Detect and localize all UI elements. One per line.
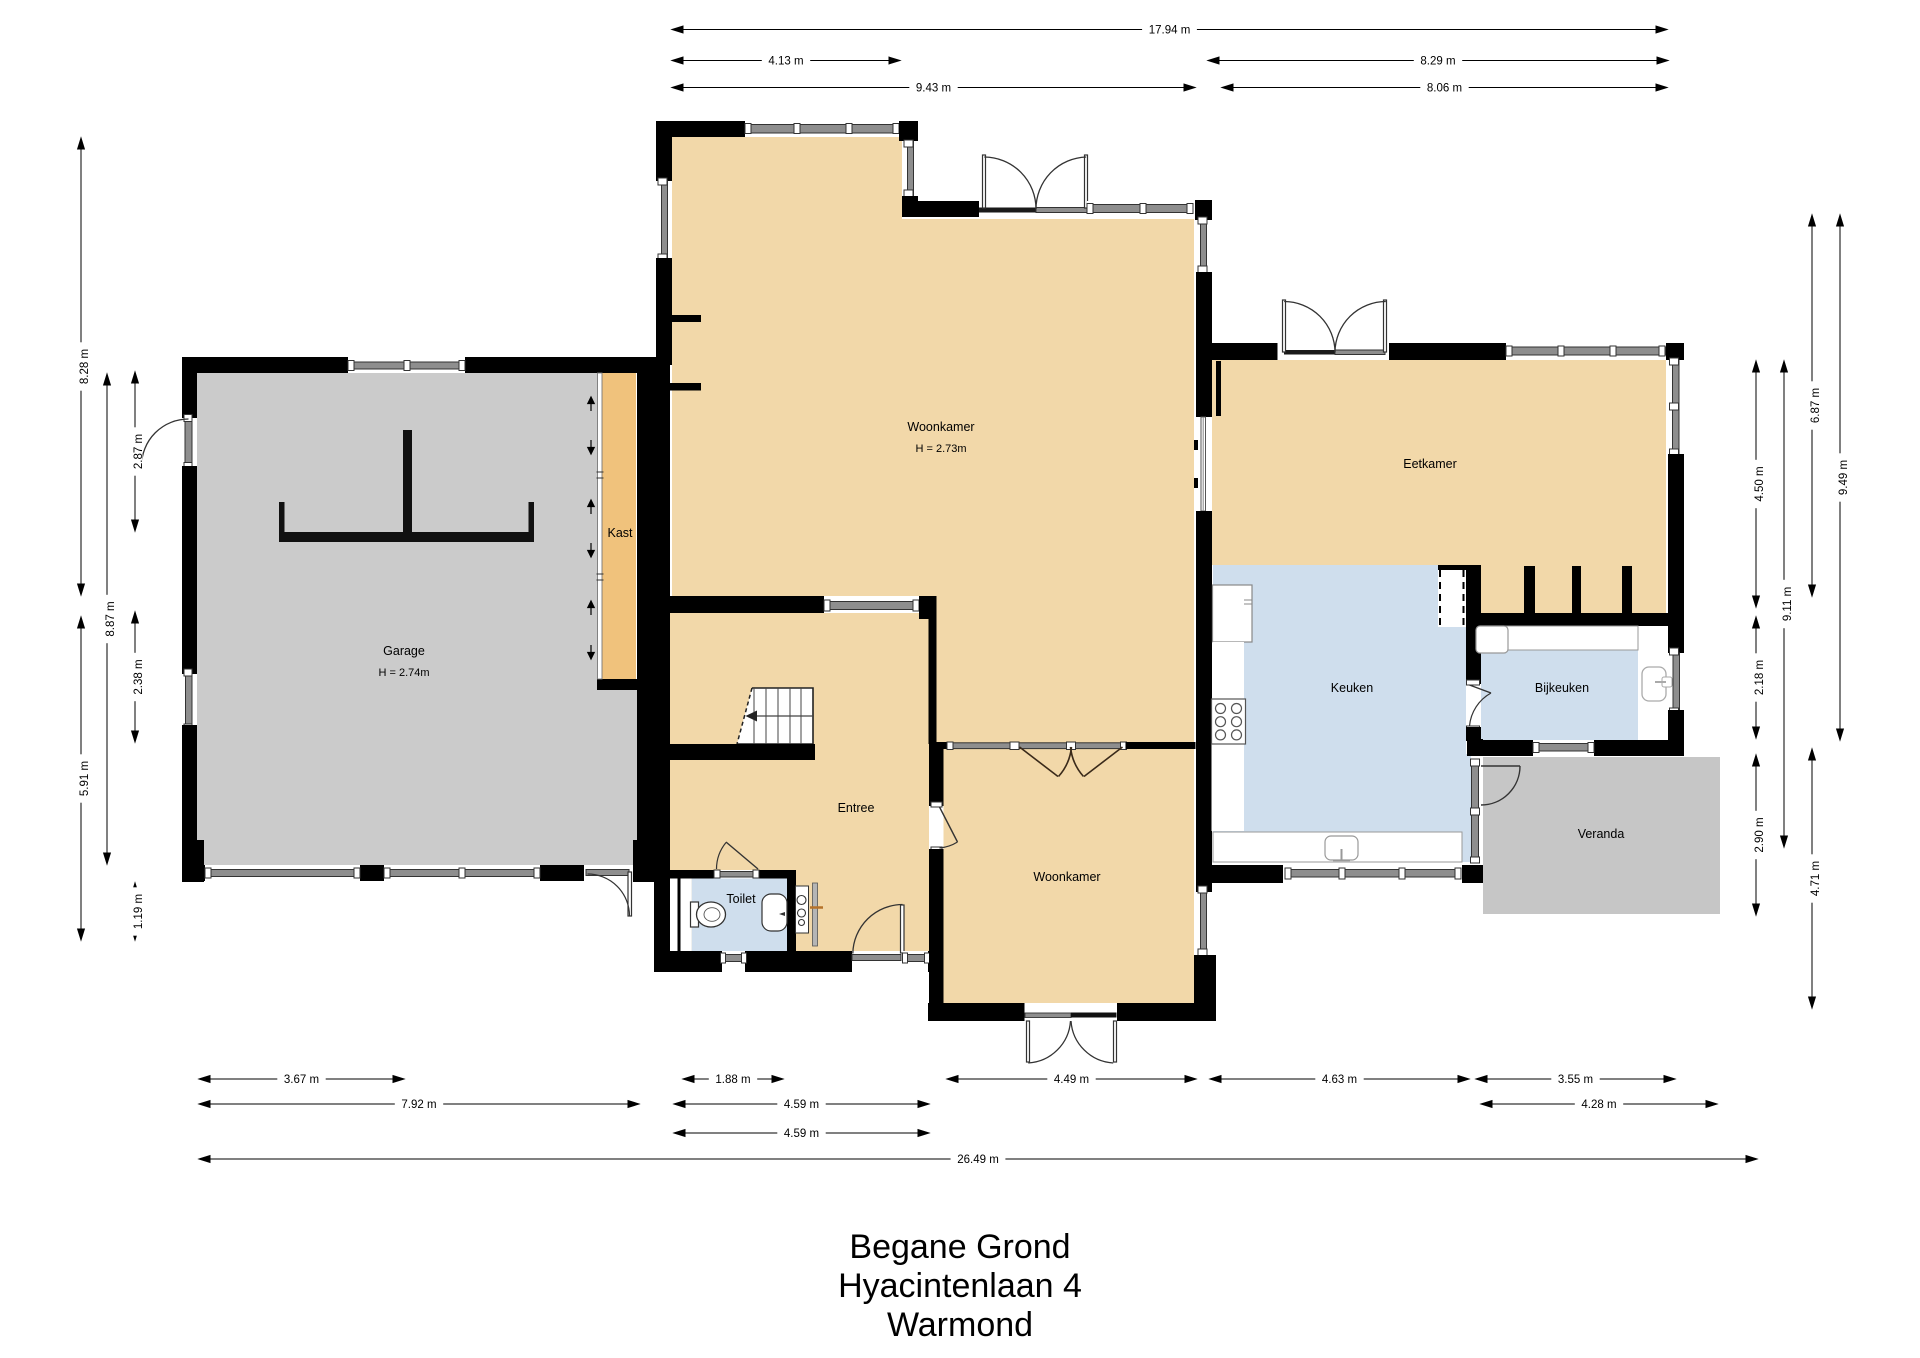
- svg-text:2.38 m: 2.38 m: [133, 659, 145, 694]
- svg-text:Entree: Entree: [838, 801, 875, 815]
- svg-text:1.19 m: 1.19 m: [133, 894, 145, 929]
- svg-text:2.18 m: 2.18 m: [1754, 660, 1766, 695]
- svg-text:Kast: Kast: [607, 526, 633, 540]
- svg-text:9.11 m: 9.11 m: [1782, 587, 1794, 621]
- svg-text:26.49 m: 26.49 m: [957, 1154, 999, 1166]
- svg-text:8.87 m: 8.87 m: [105, 601, 117, 636]
- svg-text:2.90 m: 2.90 m: [1754, 817, 1766, 852]
- svg-text:4.28 m: 4.28 m: [1581, 1099, 1616, 1111]
- svg-text:H = 2.74m: H = 2.74m: [378, 667, 429, 679]
- svg-text:4.50 m: 4.50 m: [1754, 466, 1766, 501]
- svg-text:9.43 m: 9.43 m: [916, 83, 951, 95]
- svg-text:Woonkamer: Woonkamer: [1033, 870, 1100, 884]
- svg-text:3.55 m: 3.55 m: [1558, 1074, 1593, 1086]
- svg-text:8.29 m: 8.29 m: [1420, 56, 1455, 68]
- svg-text:9.49 m: 9.49 m: [1838, 460, 1850, 495]
- svg-text:Veranda: Veranda: [1578, 827, 1625, 841]
- svg-text:3.67 m: 3.67 m: [284, 1074, 319, 1086]
- svg-text:Keuken: Keuken: [1331, 681, 1373, 695]
- svg-text:4.59 m: 4.59 m: [784, 1099, 819, 1111]
- svg-text:8.06 m: 8.06 m: [1427, 83, 1462, 95]
- svg-text:1.88 m: 1.88 m: [715, 1074, 750, 1086]
- svg-text:Hyacintenlaan 4: Hyacintenlaan 4: [838, 1267, 1082, 1305]
- svg-text:4.49 m: 4.49 m: [1054, 1074, 1089, 1086]
- svg-text:4.71 m: 4.71 m: [1810, 861, 1822, 896]
- svg-text:17.94 m: 17.94 m: [1149, 25, 1191, 37]
- svg-text:H = 2.73m: H = 2.73m: [915, 443, 966, 455]
- svg-text:Warmond: Warmond: [887, 1306, 1033, 1344]
- svg-text:Begane Grond: Begane Grond: [849, 1228, 1070, 1266]
- svg-text:Bijkeuken: Bijkeuken: [1535, 681, 1589, 695]
- svg-text:4.59 m: 4.59 m: [784, 1128, 819, 1140]
- svg-text:Eetkamer: Eetkamer: [1403, 457, 1457, 471]
- svg-text:6.87 m: 6.87 m: [1810, 388, 1822, 423]
- svg-text:Toilet: Toilet: [726, 892, 756, 906]
- svg-text:8.28 m: 8.28 m: [79, 349, 91, 384]
- svg-text:Woonkamer: Woonkamer: [907, 420, 974, 434]
- svg-text:4.63 m: 4.63 m: [1322, 1074, 1357, 1086]
- svg-text:7.92 m: 7.92 m: [401, 1099, 436, 1111]
- svg-text:4.13 m: 4.13 m: [768, 56, 803, 68]
- svg-text:Garage: Garage: [383, 644, 425, 658]
- svg-text:2.87 m: 2.87 m: [133, 434, 145, 469]
- svg-text:5.91 m: 5.91 m: [79, 761, 91, 796]
